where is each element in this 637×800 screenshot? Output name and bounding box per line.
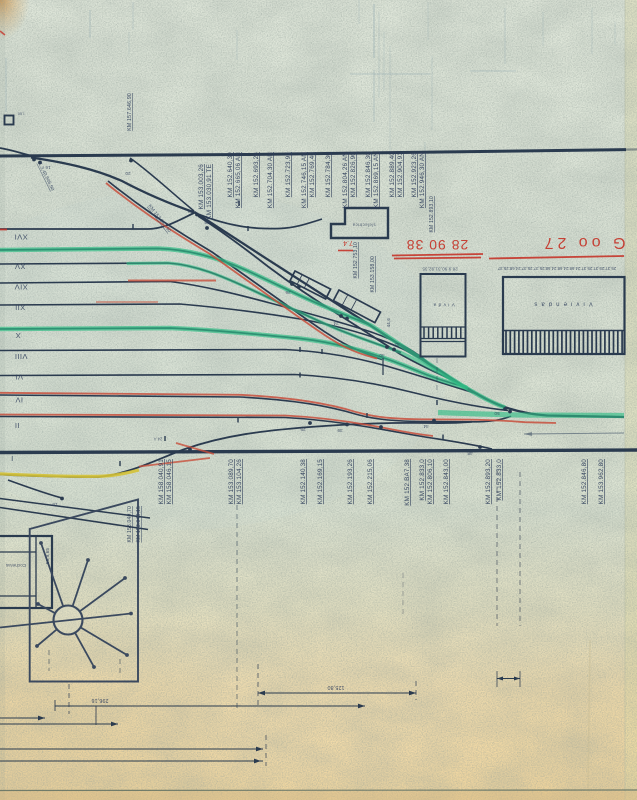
svg-text:KM 152.904,91: KM 152.904,91 (397, 152, 404, 198)
svg-text:KM 152.753,10: KM 152.753,10 (353, 242, 359, 279)
svg-text:KM 152.BA7,38: KM 152.BA7,38 (404, 459, 411, 506)
svg-text:296,16: 296,16 (91, 697, 108, 703)
svg-text:25,37:25,37:25,37:24,68:24,68:: 25,37:25,37:25,37:24,68:24,68:24,68:25,3… (497, 266, 616, 271)
svg-text:VIII: VIII (15, 352, 28, 361)
svg-text:KM 152.746,15 AN: KM 152.746,15 AN (301, 152, 308, 208)
svg-text:VI: VI (15, 373, 23, 382)
svg-text:KM 153.046,15: KM 153.046,15 (136, 506, 142, 543)
svg-text:18: 18 (52, 502, 58, 507)
svg-text:KM 153.104,26: KM 153.104,26 (236, 459, 243, 505)
svg-text:KM 153.003,26: KM 153.003,26 (198, 164, 205, 210)
svg-text:28 90 38: 28 90 38 (406, 237, 469, 253)
svg-text:39: 39 (337, 428, 343, 433)
svg-text:44: 44 (423, 424, 429, 429)
svg-text:50: 50 (494, 411, 500, 416)
svg-text:V i v d a: V i v d a (433, 302, 455, 308)
svg-text:KM 152.846,30: KM 152.846,30 (365, 152, 372, 198)
svg-text:125,80: 125,80 (327, 684, 344, 690)
svg-text:KM 152.843,00: KM 152.843,00 (443, 459, 450, 505)
svg-text:KM 152.833,0: KM 152.833,0 (419, 459, 426, 501)
svg-text:28,9:90,31,92,35: 28,9:90,31,92,35 (422, 267, 458, 272)
svg-text:KM 152.893,20: KM 152.893,20 (485, 459, 492, 505)
svg-text:28: 28 (204, 220, 210, 225)
svg-text:20: 20 (125, 171, 131, 176)
svg-text:KM 152.140,38: KM 152.140,38 (300, 459, 307, 505)
svg-text:KM 152.193,26: KM 152.193,26 (347, 459, 354, 505)
svg-text:KM 152.640,30: KM 152.640,30 (227, 152, 234, 198)
svg-text:42: 42 (394, 342, 400, 347)
svg-text:II: II (14, 421, 19, 430)
svg-text:24: 24 (333, 321, 339, 326)
svg-text:KM 152.784,30: KM 152.784,30 (325, 152, 332, 198)
svg-text:44,6: 44,6 (386, 318, 391, 328)
svg-text:KM 153.158,00: KM 153.158,00 (370, 256, 376, 293)
svg-text:KM 152.846,80: KM 152.846,80 (581, 459, 588, 505)
svg-text:KM 152.806,10: KM 152.806,10 (427, 459, 434, 505)
svg-text:KM 153.089,70: KM 153.089,70 (228, 459, 235, 505)
svg-text:KM 152.869,15 AN: KM 152.869,15 AN (373, 152, 380, 208)
svg-text:KM 152.665,06 AN: KM 152.665,06 AN (235, 152, 242, 208)
svg-text:25: 25 (300, 427, 306, 432)
svg-text:KM 158.040,91: KM 158.040,91 (158, 459, 165, 505)
svg-text:XIV: XIV (14, 283, 28, 292)
svg-text:26: 26 (285, 290, 291, 295)
svg-text:KM 152.169,15: KM 152.169,15 (317, 459, 324, 505)
svg-text:53,9,65: 53,9,65 (45, 548, 50, 564)
svg-text:I: I (11, 454, 14, 463)
svg-text:KM 152.804,26 AN: KM 152.804,26 AN (342, 152, 349, 208)
svg-text:KM 158.046,15: KM 158.046,15 (166, 459, 173, 505)
svg-text:G oo 27: G oo 27 (541, 234, 626, 251)
svg-text:XVI: XVI (14, 233, 27, 242)
svg-text:KM 152.893,10: KM 152.893,10 (429, 196, 435, 233)
svg-text:KM 152.704,30 AN: KM 152.704,30 AN (267, 152, 274, 208)
svg-text:KM 152.723,90: KM 152.723,90 (285, 152, 292, 198)
svg-text:XII: XII (15, 303, 26, 312)
svg-text:KM 152.826,90: KM 152.826,90 (350, 152, 357, 198)
svg-text:KM 152.923,26: KM 152.923,26 (411, 152, 418, 198)
svg-text:IV: IV (14, 396, 23, 405)
svg-text:KM 152.769,40: KM 152.769,40 (309, 152, 316, 198)
svg-text:KM 157.646,90: KM 157.646,90 (127, 93, 133, 131)
svg-text:26: 26 (187, 209, 193, 214)
svg-text:V i v i e n d a s: V i v i e n d a s (533, 301, 593, 307)
svg-text:KM 153.962,80: KM 153.962,80 (598, 459, 605, 505)
svg-text:XV: XV (14, 262, 25, 271)
svg-text:40: 40 (379, 353, 385, 358)
svg-text:s/electrica: s/electrica (352, 223, 376, 228)
svg-text:KM 152.946,30 AN: KM 152.946,30 AN (419, 152, 426, 208)
svg-text:X: X (15, 331, 20, 340)
svg-text:24 A: 24 A (154, 437, 163, 442)
svg-text:KM 152.693,26: KM 152.693,26 (253, 152, 260, 198)
svg-text:KM 152.215,06: KM 152.215,06 (367, 459, 374, 505)
svg-text:7.4: 7.4 (343, 239, 353, 246)
svg-text:48: 48 (467, 451, 473, 456)
svg-text:KM 152.889,40: KM 152.889,40 (389, 152, 396, 198)
svg-text:Cocheras: Cocheras (5, 563, 26, 568)
svg-text:KM 153.030,91 TE: KM 153.030,91 TE (206, 164, 213, 220)
svg-text:KM 153.040,70: KM 153.040,70 (127, 506, 133, 543)
svg-text:t.60: t.60 (18, 112, 25, 116)
